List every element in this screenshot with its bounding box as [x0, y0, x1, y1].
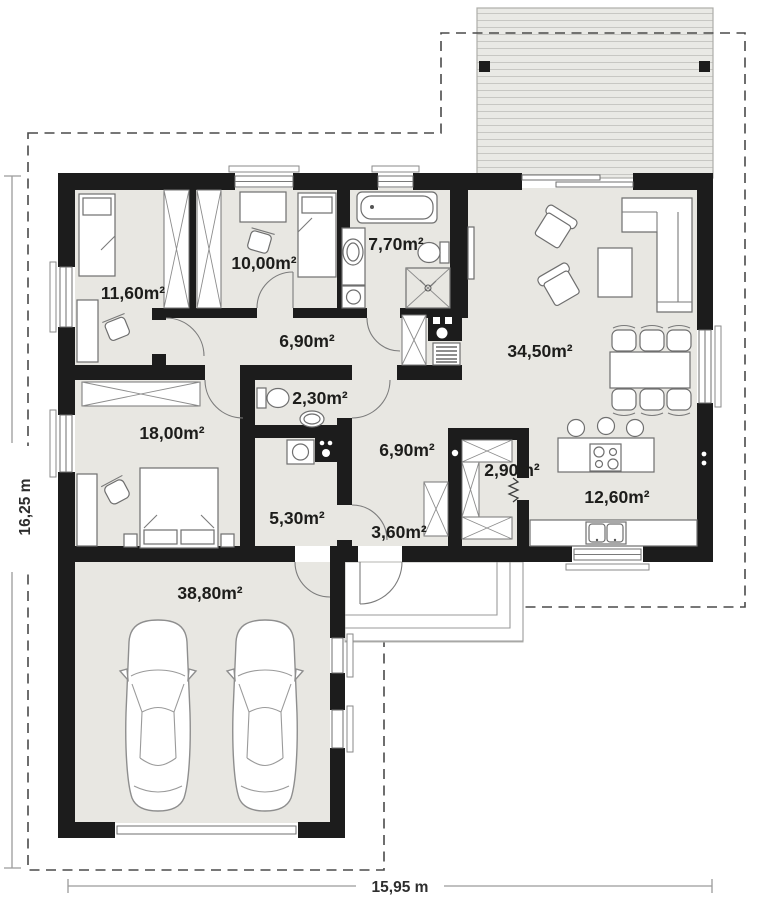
room-label-bedroom-2: 10,00m² [231, 253, 296, 273]
room-label-living: 34,50m² [507, 341, 572, 361]
bathtub [357, 192, 437, 223]
wardrobe [82, 382, 200, 406]
vent-dot [702, 452, 707, 457]
wardrobe [197, 190, 221, 308]
washing-machine [287, 440, 314, 464]
double-bed [140, 468, 218, 548]
single-bed [298, 193, 336, 277]
room-label-bedroom-1: 11,60m² [101, 283, 165, 303]
terrace-post [479, 61, 490, 72]
washbasin [300, 411, 324, 427]
nightstand [124, 534, 137, 547]
bar-stool [568, 420, 585, 437]
washbasin [343, 239, 363, 265]
room-label-corridor: 6,90m² [379, 440, 435, 460]
room-label-garage: 38,80m² [177, 583, 242, 603]
terrace-post [699, 61, 710, 72]
dimension-left: 16,25 m [4, 176, 40, 868]
room-label-kitchen: 12,60m² [584, 487, 649, 507]
vent-dot [702, 461, 707, 466]
car [120, 620, 196, 811]
wardrobe [402, 315, 426, 365]
tv [468, 227, 474, 279]
column-marker [452, 450, 458, 456]
width-dimension: 15,95 m [372, 879, 429, 896]
room-label-wc: 2,30m² [292, 388, 348, 408]
wardrobe [462, 440, 512, 462]
toilet [257, 388, 289, 408]
room-label-entry: 3,60m² [371, 522, 427, 542]
room-label-bedroom-3: 18,00m² [139, 423, 204, 443]
room-label-utility: 5,30m² [269, 508, 325, 528]
coffee-table [598, 248, 632, 297]
dimension-bottom: 15,95 m [68, 879, 712, 896]
floor-plan: 11,60m² 10,00m² 7,70m² 6,90m² 34,50m² 2,… [0, 0, 759, 900]
room-label-pantry: 2,90m² [484, 460, 540, 480]
wardrobe [462, 517, 512, 539]
room-label-bathroom: 7,70m² [368, 234, 424, 254]
dining-table [610, 352, 690, 388]
room-label-hall: 6,90m² [279, 331, 335, 351]
boiler [315, 437, 337, 462]
nightstand [221, 534, 234, 547]
wardrobe [164, 190, 189, 308]
single-bed [79, 194, 115, 276]
desk [240, 192, 286, 222]
desk [77, 300, 98, 362]
height-dimension: 16,25 m [17, 479, 34, 536]
wardrobe [462, 462, 479, 517]
car [227, 620, 303, 811]
washing-machine [342, 286, 365, 308]
bar-stool [627, 420, 644, 437]
bar-stool [598, 418, 615, 435]
wardrobe [424, 482, 448, 536]
desk [77, 474, 97, 546]
kitchen-island [558, 438, 654, 472]
